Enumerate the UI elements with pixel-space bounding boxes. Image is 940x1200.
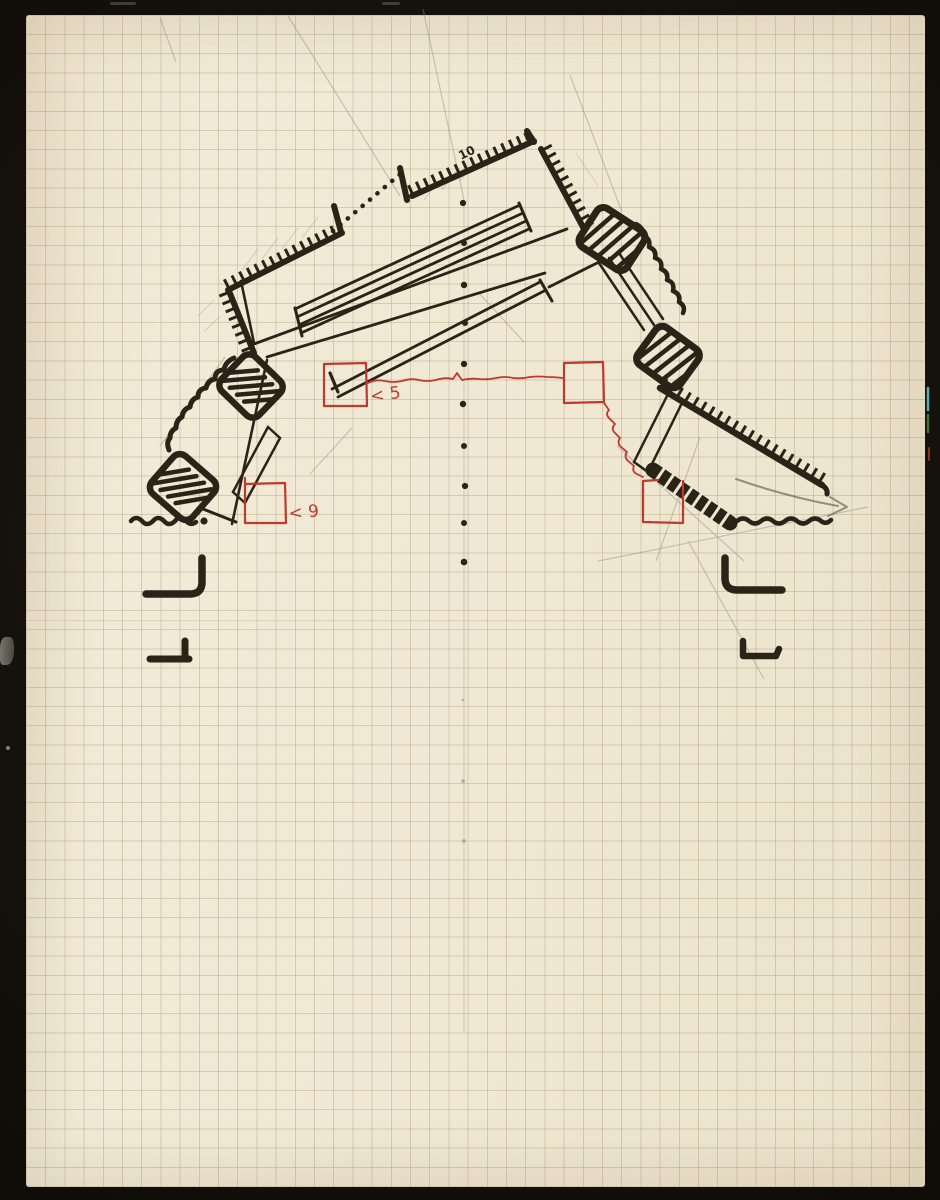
top-left-comb-edge <box>225 206 342 290</box>
corner-bracket-right-upper <box>725 558 782 590</box>
right-long-comb-edge <box>660 382 827 494</box>
dark-ladder-band <box>653 470 730 523</box>
stage-structure <box>131 131 831 659</box>
corner-bracket-left-upper <box>146 558 202 594</box>
red-connector-wavy <box>368 373 563 383</box>
corner-bracket-left-lower <box>150 641 189 659</box>
hatched-diamond-left-upper <box>210 345 292 427</box>
hatched-diamond-left-lower <box>140 445 224 527</box>
top-dotted-edge <box>333 170 405 231</box>
red-connector-zigzag <box>604 403 643 477</box>
annotation-square5-label: < 5 <box>369 383 402 407</box>
wavy-line-bottom-right <box>737 519 831 524</box>
wavy-line-bottom-left <box>131 518 196 524</box>
seating-rows-lower <box>330 261 601 397</box>
ink-dot-terminal <box>200 517 207 524</box>
diamond-connector-line <box>203 509 236 522</box>
annotation-10: 10 <box>456 143 477 163</box>
annotation-square9-label: < 9 <box>288 501 320 524</box>
top-right-comb-edge <box>541 146 590 229</box>
top-comb-edge <box>400 131 534 200</box>
pencil-shading-strokes <box>198 153 598 332</box>
edge-tick <box>334 206 341 232</box>
pencil-arrow <box>736 479 847 516</box>
sketch-svg: 10 < 5 < 9 <box>0 0 940 1200</box>
right-border-scan-artifacts <box>928 388 929 460</box>
passage-band-right <box>634 396 681 472</box>
corner-bracket-right-lower <box>743 641 779 656</box>
red-plot-square-4 <box>245 478 286 523</box>
wavy-line-corridor <box>636 224 684 313</box>
edge-tick <box>400 168 407 200</box>
scan-background: 10 < 5 < 9 <box>0 0 940 1200</box>
red-plot-square-2 <box>564 362 604 403</box>
